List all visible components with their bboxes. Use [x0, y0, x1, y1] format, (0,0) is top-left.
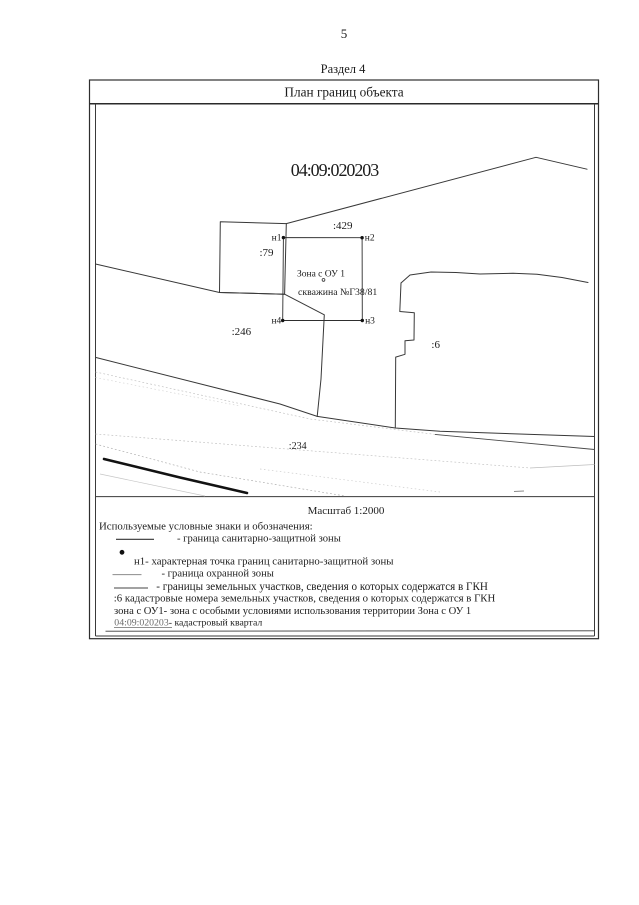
svg-text:н2: н2 [365, 234, 375, 244]
svg-text:Масштаб 1:2000: Масштаб 1:2000 [308, 505, 385, 517]
svg-text:- граница санитарно-защитной з: - граница санитарно-защитной зоны [177, 533, 341, 544]
svg-text:н3: н3 [365, 316, 375, 326]
svg-text:зона с ОУ1- зона с особыми усл: зона с ОУ1- зона с особыми условиями исп… [114, 606, 471, 617]
svg-text:Зона с ОУ 1: Зона с ОУ 1 [297, 270, 345, 280]
svg-text:04:09:020203- кадастровый квар: 04:09:020203- кадастровый квартал [114, 618, 262, 629]
svg-text::6 кадастровые номера земельны: :6 кадастровые номера земельных участков… [114, 592, 496, 604]
svg-text::246: :246 [232, 326, 252, 338]
svg-text:Используемые условные знаки и: Используемые условные знаки и обозначени… [99, 520, 313, 532]
svg-text:5: 5 [341, 26, 348, 41]
svg-text::234: :234 [289, 441, 307, 452]
svg-text::429: :429 [333, 220, 353, 232]
svg-text:- граница охранной зоны: - граница охранной зоны [162, 569, 274, 580]
svg-text:- границы земельных участков,: - границы земельных участков, сведения о… [156, 581, 488, 593]
svg-text:скважина №Г38/81: скважина №Г38/81 [298, 287, 377, 298]
svg-text::79: :79 [260, 247, 275, 259]
svg-text:Раздел 4: Раздел 4 [321, 62, 366, 76]
svg-text::6: :6 [431, 339, 440, 351]
svg-text:н1: н1 [272, 234, 282, 244]
svg-text:План границ объекта: План границ объекта [284, 85, 403, 100]
svg-text:н4: н4 [271, 316, 281, 326]
svg-text:н1- характерная точка границ с: н1- характерная точка границ санитарно-з… [134, 555, 394, 567]
svg-text:04:09:020203: 04:09:020203 [291, 160, 379, 180]
